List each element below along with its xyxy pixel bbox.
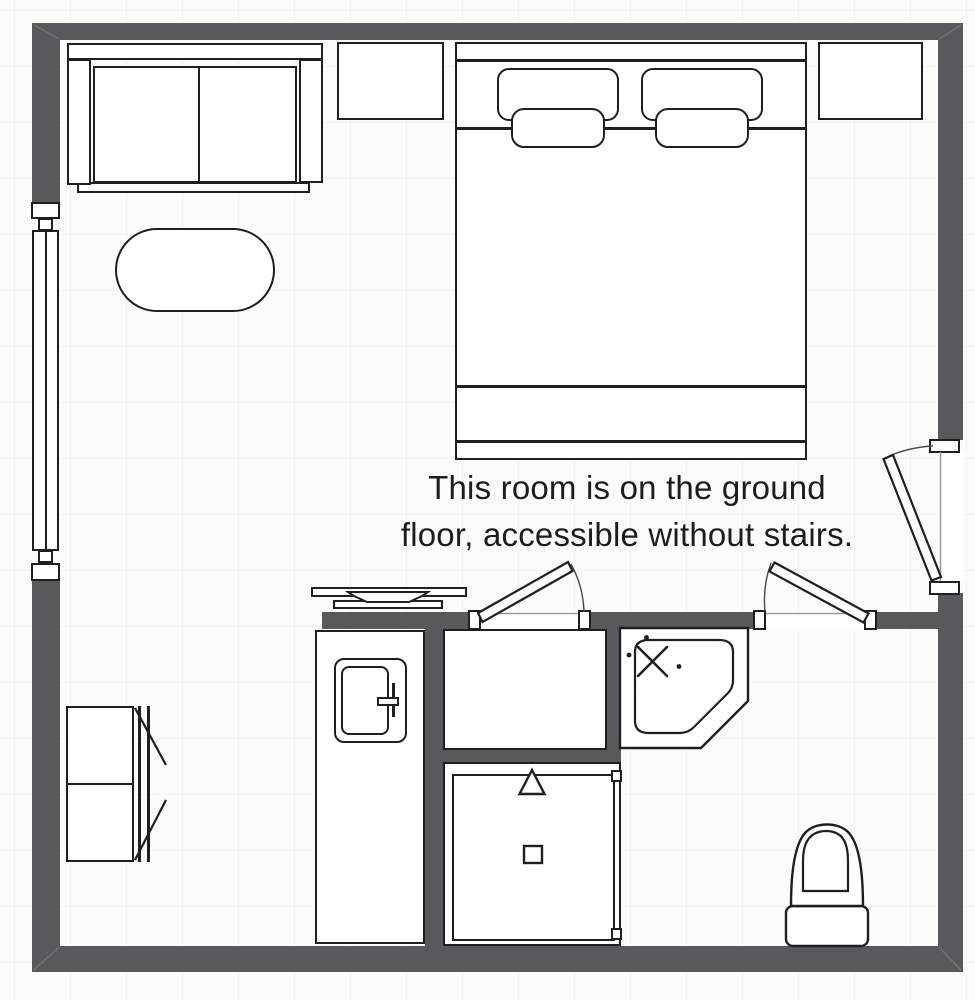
entrance-door-opening	[938, 452, 963, 581]
bed-blanket-line	[456, 127, 806, 130]
toilet-tank	[786, 906, 868, 946]
wall-left-upper	[32, 23, 60, 203]
window-cap-top	[31, 202, 60, 219]
pillow-small-right	[655, 108, 749, 148]
toilet-bowl	[791, 825, 863, 907]
window-center-line	[45, 232, 47, 549]
interior-wall-wardrobe-right	[425, 629, 443, 946]
entrance-door-stop-bottom	[929, 581, 960, 595]
coffee-table	[115, 228, 275, 312]
bathroom-door-arc	[764, 563, 771, 611]
wall-left-lower	[32, 581, 60, 972]
wall-right-lower	[938, 593, 963, 972]
shower-spray-dots	[627, 635, 682, 669]
bed-foot-line-upper	[456, 385, 806, 388]
bed-foot-line-lower	[456, 440, 806, 443]
floor-plan: This room is on the ground floor, access…	[0, 0, 975, 1000]
window-mullion-bottom	[38, 550, 53, 563]
tv-cabinet-divider	[68, 783, 132, 785]
accessibility-note-line2: floor, accessible without stairs.	[327, 511, 927, 558]
nightstand-right	[818, 42, 923, 120]
sofa-seat-cushions	[93, 66, 297, 183]
tv-panel-front	[138, 706, 141, 862]
wall-bottom	[32, 946, 963, 972]
sofa-armrest-right	[299, 59, 323, 183]
tv-panel-back	[147, 706, 150, 862]
corner-shower-outline	[620, 628, 748, 748]
vestibule-floor	[443, 629, 607, 750]
tv-cabinet	[66, 706, 134, 862]
vestibule-door-arc	[571, 564, 584, 612]
entrance-door-arc	[889, 446, 933, 456]
window-cap-bottom	[31, 563, 60, 581]
bathroom-door-post-right	[864, 610, 877, 630]
nightstand-left	[337, 42, 444, 120]
pillow-small-left	[511, 108, 605, 148]
vestibule-door-opening	[481, 611, 578, 630]
window-glazing	[32, 230, 59, 551]
bathroom-door-post-left	[753, 610, 766, 630]
entrance-door-stop-top	[929, 439, 960, 453]
shower-door-hinge-bottom	[611, 928, 622, 940]
sofa-armrest-left	[67, 59, 91, 185]
bathroom-door-opening	[766, 611, 864, 630]
bed-headboard-line	[456, 59, 806, 62]
vestibule-door-post-left	[468, 610, 481, 630]
wall-top	[32, 23, 963, 40]
minibar-handle	[377, 697, 399, 706]
accessibility-note: This room is on the ground floor, access…	[327, 464, 927, 558]
accessibility-note-line1: This room is on the ground	[327, 464, 927, 511]
shelf-lower-board	[333, 600, 443, 609]
sofa-front-skirt	[77, 182, 310, 193]
toilet-seat	[803, 831, 848, 891]
sofa-back	[67, 43, 323, 60]
vestibule-door-post-right	[578, 610, 591, 630]
shower-cabin-tray	[452, 774, 615, 941]
sofa-cushion-divider	[198, 68, 200, 181]
shelf-upper-board	[311, 587, 467, 597]
wall-right-upper	[938, 23, 963, 440]
corner-shower-basin	[635, 640, 733, 733]
shower-fixture-icon	[638, 647, 667, 676]
interior-wall-vestibule-bottom	[443, 748, 621, 762]
shower-door-hinge-top	[611, 770, 622, 782]
